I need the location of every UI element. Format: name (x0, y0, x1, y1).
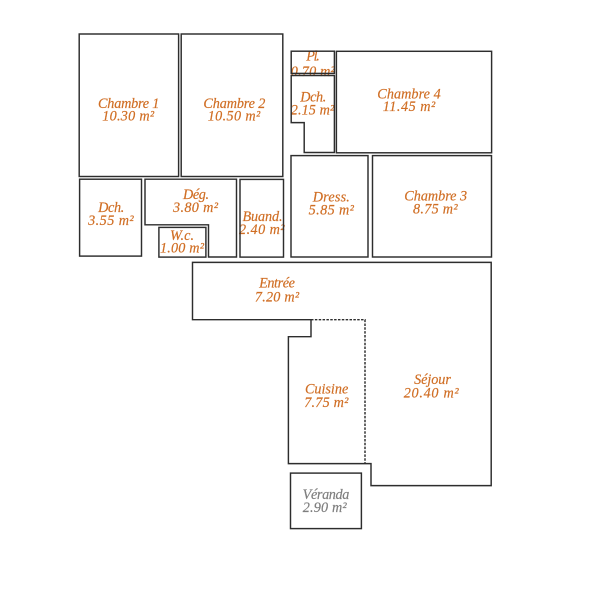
svg-text:2.15 m²: 2.15 m² (291, 102, 335, 118)
svg-text:2.90 m²: 2.90 m² (303, 500, 348, 516)
svg-text:10.50 m²: 10.50 m² (208, 109, 261, 125)
svg-text:5.85 m²: 5.85 m² (309, 202, 355, 218)
svg-text:1.00 m²: 1.00 m² (160, 240, 205, 256)
svg-text:3.55 m²: 3.55 m² (87, 213, 134, 229)
svg-text:3.80 m²: 3.80 m² (172, 200, 219, 216)
svg-text:7.75 m²: 7.75 m² (304, 395, 349, 411)
svg-text:7.20 m²: 7.20 m² (255, 290, 300, 306)
svg-text:11.45 m²: 11.45 m² (383, 99, 436, 115)
svg-text:2.40 m²: 2.40 m² (239, 222, 285, 238)
svg-text:10.30 m²: 10.30 m² (102, 109, 155, 125)
svg-text:0.70 m²: 0.70 m² (291, 64, 336, 80)
svg-text:8.75 m²: 8.75 m² (413, 202, 458, 218)
svg-text:20.40 m²: 20.40 m² (404, 385, 460, 401)
